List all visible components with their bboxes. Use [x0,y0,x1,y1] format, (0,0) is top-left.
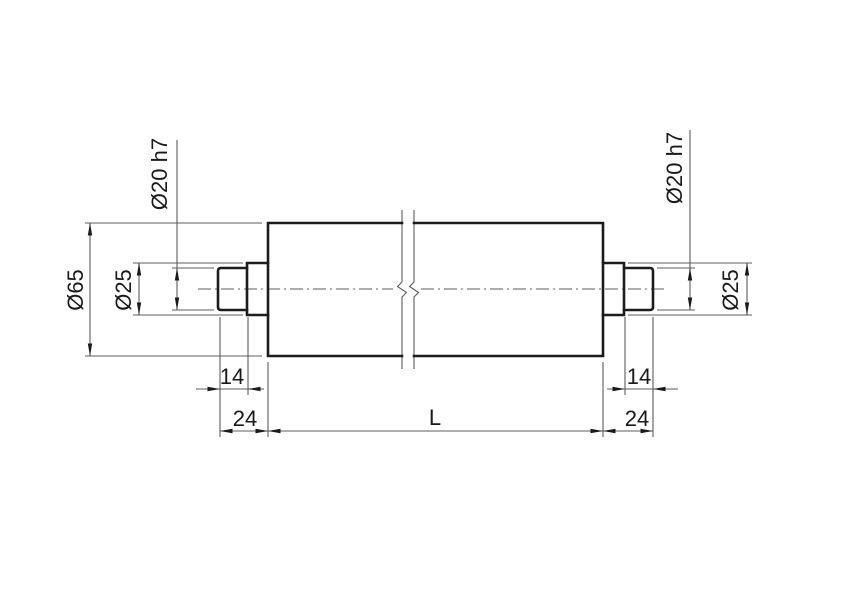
break-lines [398,210,419,369]
arrow-dia25-right-bottom [745,303,749,316]
label-body-length: L [429,405,441,430]
label-right-end-diameter: Ø20 h7 [662,132,687,204]
dimension-labels: Ø65 Ø25 Ø20 h7 Ø20 h7 Ø25 14 24 L 14 24 [63,132,743,431]
drawing-canvas: Ø65 Ø25 Ø20 h7 Ø20 h7 Ø25 14 24 L 14 24 [0,0,850,600]
body-left-half [268,223,402,356]
arrow-dia20-right-bottom [688,298,692,311]
extension-lines [85,223,752,437]
arrow-14-right-b [653,387,666,391]
arrow-dia25-left-top [137,263,141,276]
arrow-dia20-left-bottom [175,298,179,311]
label-right-step-diameter: Ø25 [718,269,743,311]
arrowheads [88,223,749,433]
label-left-end-diameter: Ø20 h7 [147,138,172,210]
arrow-L-left [268,429,281,433]
arrow-14-right-a [613,387,626,391]
arrow-dia20-left-top [175,268,179,281]
break-line-right [410,210,419,369]
break-line-left [398,210,407,369]
label-left-end-length: 14 [220,364,244,389]
arrow-14-left-a [208,387,221,391]
arrow-dia20-right-top [688,268,692,281]
label-left-step-diameter: Ø25 [111,269,136,311]
arrow-dia65-top [88,223,92,236]
label-right-overhang-length: 24 [625,406,649,431]
label-body-diameter: Ø65 [63,269,88,311]
arrow-24-left-a [220,429,233,433]
arrow-dia25-left-bottom [137,303,141,316]
arrow-24-right-a [603,429,616,433]
arrow-dia65-bottom [88,344,92,357]
arrow-L-right [591,429,604,433]
arrow-14-left-b [248,387,261,391]
arrow-24-left-b [256,429,269,433]
label-left-overhang-length: 24 [233,406,257,431]
label-right-end-length: 14 [627,364,651,389]
roller-drawing: Ø65 Ø25 Ø20 h7 Ø20 h7 Ø25 14 24 L 14 24 [0,0,850,600]
arrow-dia25-right-top [745,263,749,276]
